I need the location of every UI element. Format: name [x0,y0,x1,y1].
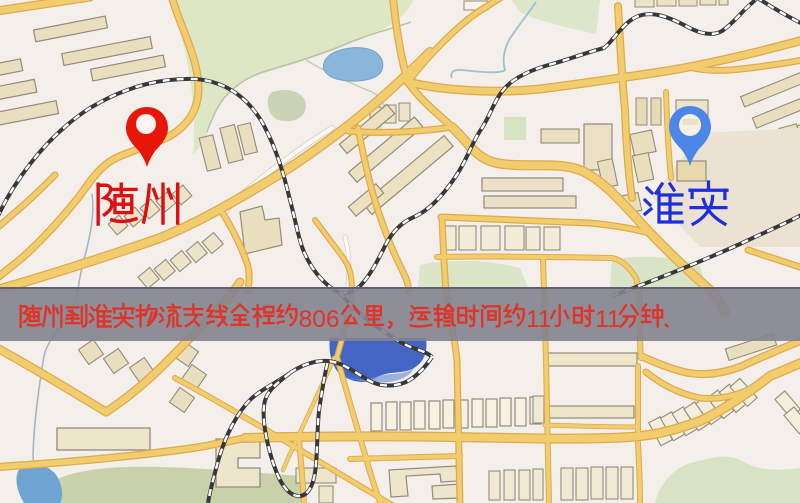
svg-text:11: 11 [526,306,551,333]
svg-text:11: 11 [595,306,620,333]
svg-text:806: 806 [299,306,340,333]
